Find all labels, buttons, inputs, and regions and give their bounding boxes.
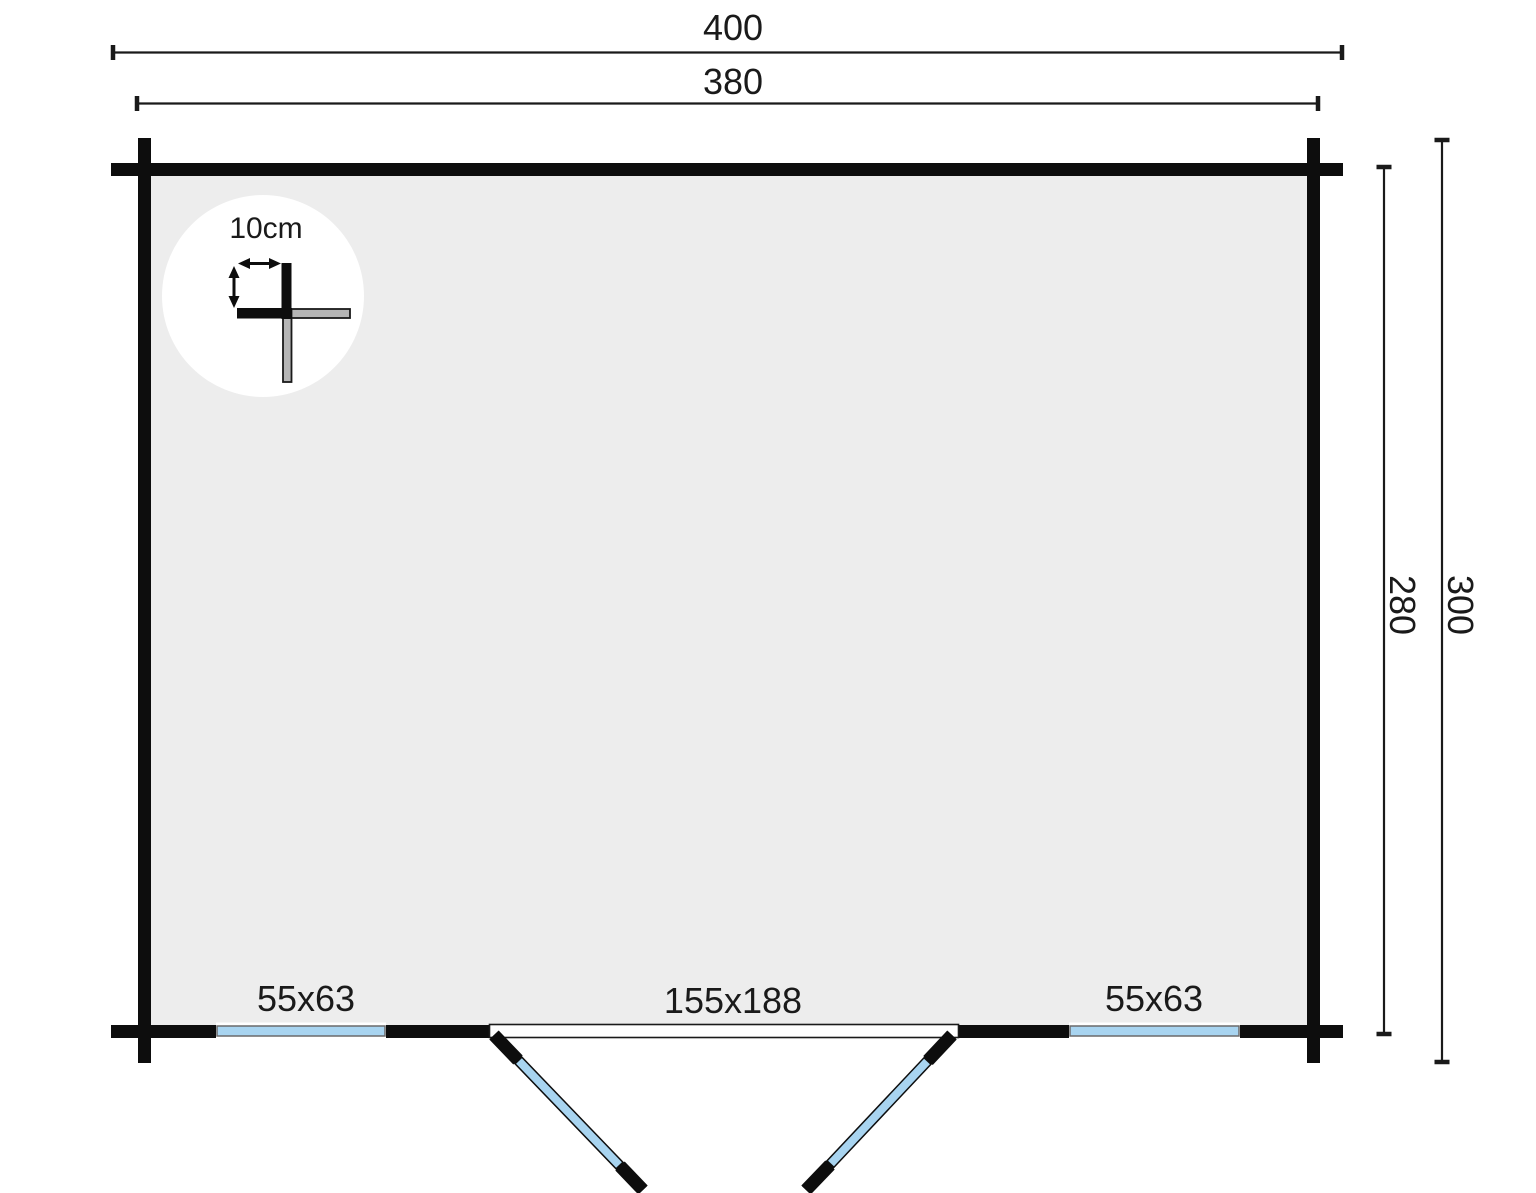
door-tip-block xyxy=(806,1165,830,1190)
dimension-label-top-outer: 400 xyxy=(703,7,763,48)
wall-left xyxy=(138,138,151,1063)
door-leaf-right xyxy=(806,1035,952,1190)
dimension-top-outer: 400 xyxy=(113,7,1342,60)
door-tip-block xyxy=(620,1166,643,1190)
window-glass xyxy=(1070,1026,1239,1036)
wall-top xyxy=(111,163,1343,176)
door-leaf-left xyxy=(494,1035,643,1190)
wall-thickness-detail: 10cm xyxy=(162,195,364,397)
wall-right xyxy=(1307,138,1320,1063)
dimension-top-inner: 380 xyxy=(137,61,1318,111)
door-hinge-block xyxy=(928,1035,952,1061)
dimension-right-inner: 280 xyxy=(1377,167,1424,1034)
dimension-label-right-inner: 280 xyxy=(1382,575,1423,635)
dimension-right-outer: 300 xyxy=(1435,140,1482,1062)
door-leaf-glass xyxy=(519,1061,619,1165)
log-arm-black-horizontal xyxy=(237,308,292,319)
dimension-label-right-outer: 300 xyxy=(1440,575,1481,635)
door-leaf-glass xyxy=(831,1062,927,1164)
door-threshold xyxy=(490,1025,959,1038)
detail-label: 10cm xyxy=(229,212,302,245)
window-glass xyxy=(217,1026,385,1036)
floor-plan-drawing: 400 380 280 300 xyxy=(0,0,1536,1193)
floor-plan-page: 400 380 280 300 xyxy=(0,0,1536,1193)
window-right-label: 55x63 xyxy=(1105,978,1203,1019)
window-left-label: 55x63 xyxy=(257,978,355,1019)
log-arm-gray-horizontal xyxy=(292,309,351,318)
door-label: 155x188 xyxy=(664,980,802,1021)
dimension-label-top-inner: 380 xyxy=(703,61,763,102)
log-arm-gray-vertical xyxy=(283,318,292,382)
door-hinge-block xyxy=(494,1035,518,1060)
